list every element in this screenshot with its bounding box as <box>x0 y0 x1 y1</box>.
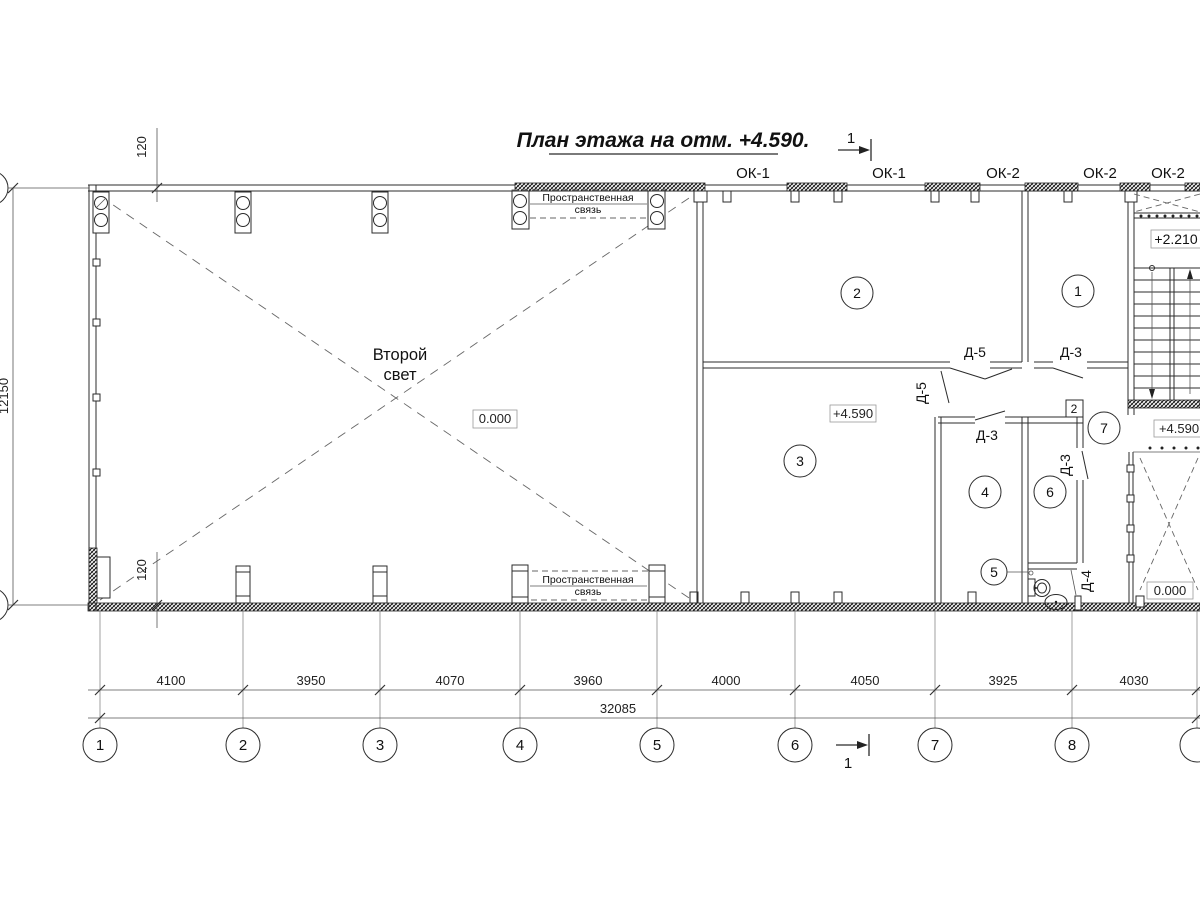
staircase <box>1128 194 1200 408</box>
dimension-row-total: 32085 <box>88 701 1200 723</box>
door-label: Д-3 <box>1060 344 1082 360</box>
dim-span: 3960 <box>574 673 603 688</box>
room-1: 1 <box>1074 283 1082 299</box>
hall-labels: Второй свет 0.000 <box>373 346 517 428</box>
dimension-wall-offsets: 120 120 <box>134 128 162 628</box>
hall-void-cross <box>100 196 692 600</box>
hall-level: 0.000 <box>479 411 512 426</box>
door-label: Д-3 <box>976 427 998 443</box>
door-labels: Д-5 Д-3 Д-5 Д-3 Д-3 Д-4 <box>913 344 1094 592</box>
outer-walls <box>88 183 1200 611</box>
level-marks: +4.590 +2.210 +4.590 0.000 <box>830 230 1200 599</box>
mezzanine-level: +4.590 <box>833 406 873 421</box>
brace-bottom-label-2: связь <box>575 586 602 598</box>
dim-span: 4030 <box>1120 673 1149 688</box>
dim-span: 4050 <box>851 673 880 688</box>
door-label: Д-5 <box>913 382 929 404</box>
grid-bubble: 3 <box>376 737 384 754</box>
spatial-brace-bottom: Пространственная связь <box>512 565 665 603</box>
window-label: ОК-1 <box>872 165 906 182</box>
dim-height: 12150 <box>0 378 11 414</box>
dim-span: 3925 <box>989 673 1018 688</box>
dim-span: 4070 <box>436 673 465 688</box>
room-5: 5 <box>990 564 998 580</box>
grid-bubble: 6 <box>791 737 799 754</box>
door-label: Д-3 <box>1057 454 1073 476</box>
spatial-brace-top: Пространственная связь <box>512 190 665 229</box>
window-label: ОК-2 <box>986 165 1020 182</box>
room-2: 2 <box>853 285 861 301</box>
hall-label-1: Второй <box>373 346 428 364</box>
brace-bottom-label-1: Пространственная <box>542 574 633 586</box>
grid-bubble: 5 <box>653 737 661 754</box>
room-7: 7 <box>1100 420 1108 436</box>
section-label: 1 <box>847 130 855 147</box>
window-mullions <box>723 191 1072 202</box>
hall-label-2: свет <box>383 366 416 384</box>
floor-plan-drawing: План этажа на отм. +4.590. <box>0 0 1200 900</box>
window-label: ОК-2 <box>1151 165 1185 182</box>
window-band <box>1025 183 1078 191</box>
grid-bubble: 1 <box>96 737 104 754</box>
window-band <box>925 183 980 191</box>
stair-landing-level: +2.210 <box>1154 231 1197 247</box>
bottom-wall-posts <box>690 592 976 603</box>
drawing-title: План этажа на отм. +4.590. <box>517 129 810 154</box>
columns-top <box>93 192 388 233</box>
node-marker: 2 <box>1071 402 1078 416</box>
window-label: ОК-2 <box>1083 165 1117 182</box>
dim-span: 4000 <box>712 673 741 688</box>
grid-bubble: 8 <box>1068 737 1076 754</box>
stair-exit-level: +4.590 <box>1159 421 1199 436</box>
page-title: План этажа на отм. +4.590. <box>517 129 810 152</box>
window-band <box>1185 183 1200 191</box>
window-band <box>787 183 847 191</box>
dim-wall-bottom: 120 <box>134 559 149 581</box>
room-numbers: 1 2 3 4 5 6 7 2 <box>784 275 1120 585</box>
dimension-height: 12150 <box>0 183 89 610</box>
section-label: 1 <box>844 755 852 772</box>
window-band <box>1120 183 1150 191</box>
room-6: 6 <box>1046 484 1054 500</box>
grid-bubble-clipped <box>1180 728 1200 762</box>
void-level: 0.000 <box>1154 583 1187 598</box>
room-3: 3 <box>796 453 804 469</box>
room-4: 4 <box>981 484 989 500</box>
door-label: Д-5 <box>964 344 986 360</box>
window-labels: ОК-1 ОК-1 ОК-2 ОК-2 ОК-2 <box>736 165 1185 182</box>
dim-span: 3950 <box>297 673 326 688</box>
brace-top-label-2: связь <box>575 204 602 216</box>
section-mark-bottom: 1 <box>836 734 869 772</box>
dim-span: 4100 <box>157 673 186 688</box>
row-bubble-clipped <box>0 588 8 622</box>
window-label: ОК-1 <box>736 165 770 182</box>
bottom-wall <box>88 603 1200 611</box>
grid-bubble: 2 <box>239 737 247 754</box>
dim-total: 32085 <box>600 701 636 716</box>
grid-bubble: 7 <box>931 737 939 754</box>
brace-top-label-1: Пространственная <box>542 192 633 204</box>
dim-wall-top: 120 <box>134 136 149 158</box>
grid-bubble: 4 <box>516 737 524 754</box>
section-mark-top: 1 <box>838 130 871 161</box>
plan-canvas: План этажа на отм. +4.590. <box>0 0 1200 900</box>
door-label: Д-4 <box>1078 570 1094 592</box>
dimension-row-spans: 4100 3950 4070 3960 4000 4050 3925 4030 <box>88 673 1200 695</box>
row-bubble-clipped <box>0 171 8 205</box>
